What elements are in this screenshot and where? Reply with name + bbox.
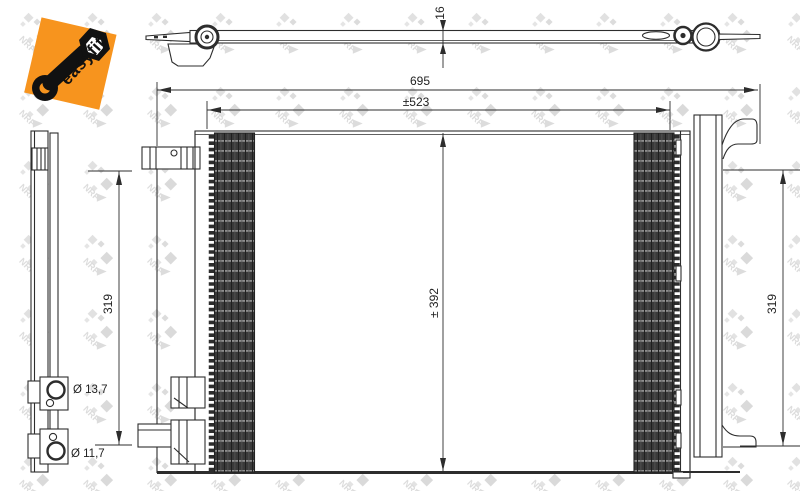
technical-drawing-page: NRF POLOVNI AUTOMOBILI bbox=[0, 0, 800, 491]
front-view-drawing bbox=[138, 131, 690, 478]
port-top-diameter-label: Ø 13,7 bbox=[73, 384, 108, 396]
dim-overall-width-label: 695 bbox=[410, 74, 430, 88]
dim-right-height-label: 319 bbox=[765, 294, 779, 314]
dim-thickness-label: 16 bbox=[433, 6, 447, 20]
condenser-technical-drawing: NRF POLOVNI AUTOMOBILI bbox=[0, 0, 800, 491]
dim-left-height-label: 319 bbox=[101, 294, 115, 314]
dim-core-width-label: ±523 bbox=[403, 95, 430, 109]
dim-core-height-label: ± 392 bbox=[427, 288, 441, 318]
port-bottom-diameter-label: Ø 11,7 bbox=[71, 448, 105, 460]
